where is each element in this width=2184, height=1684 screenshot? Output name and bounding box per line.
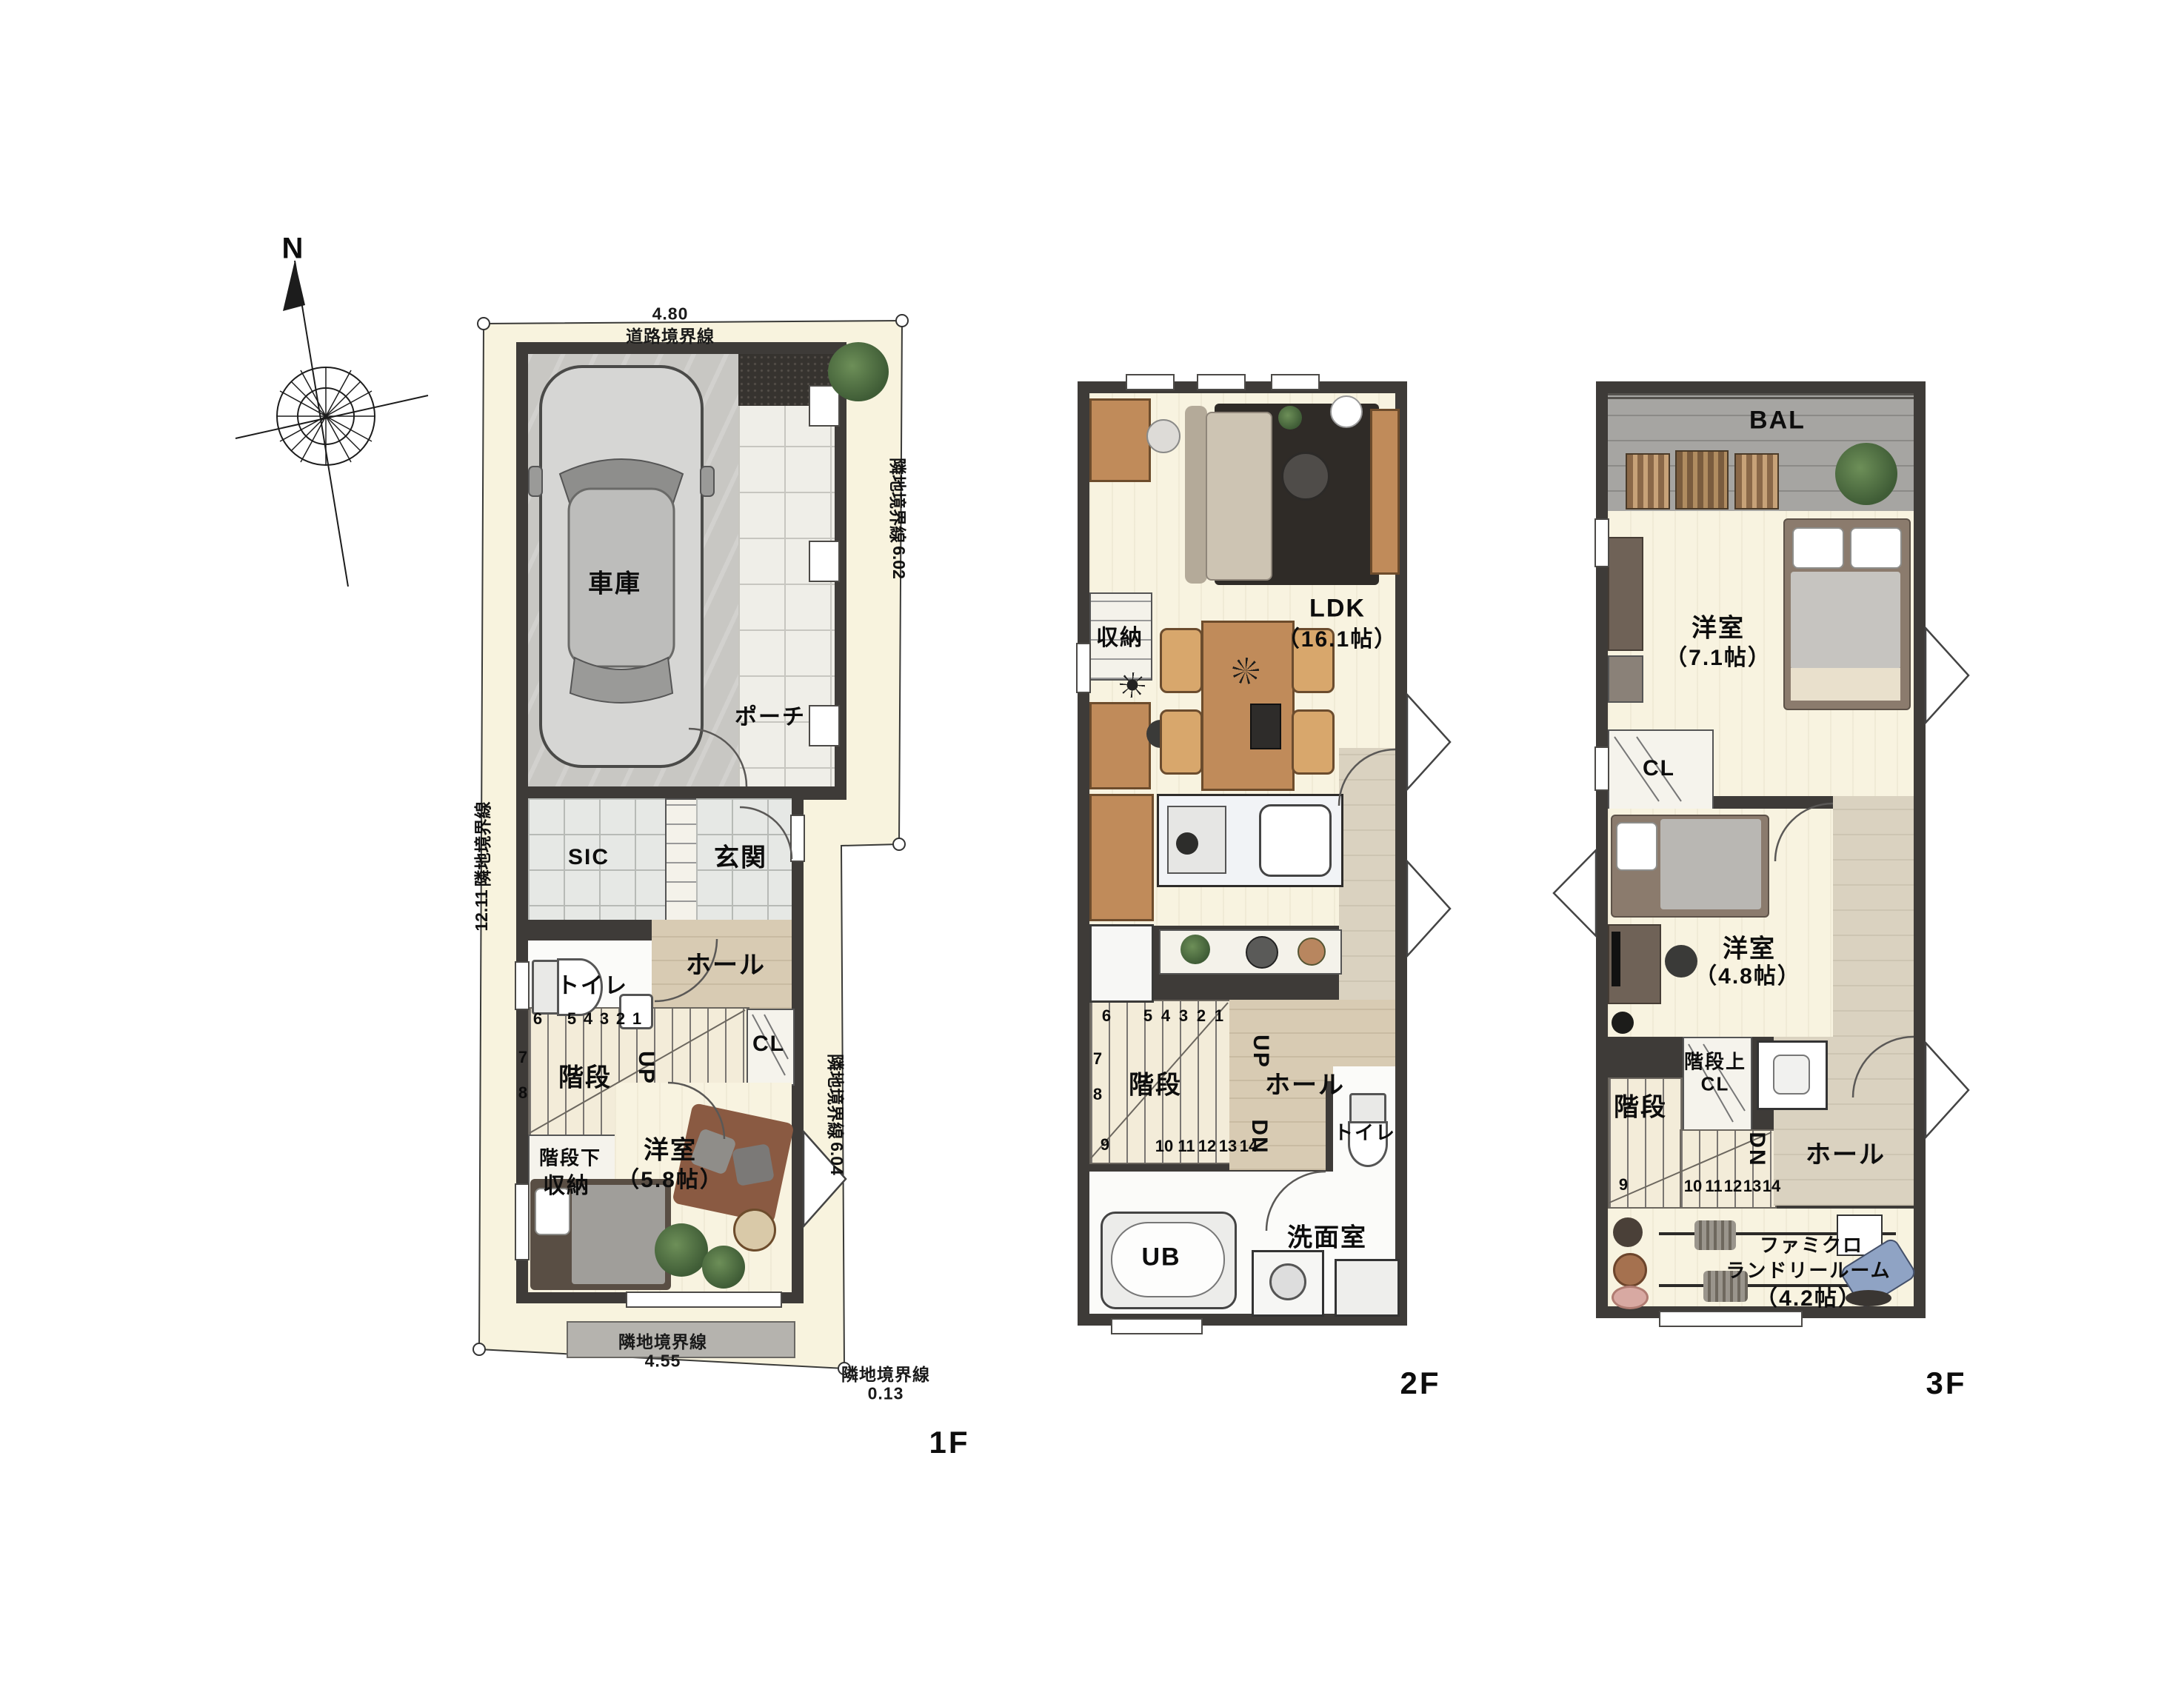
dim-bottom-line: 隣地境界線 bbox=[618, 1328, 707, 1353]
f2-step-4: 4 bbox=[1161, 1006, 1170, 1026]
f3-famiclo-label-3: （4.2帖） bbox=[1755, 1280, 1862, 1312]
f2-toilet-label: トイレ bbox=[1334, 1118, 1396, 1146]
f1-toilet-label: トイレ bbox=[557, 967, 628, 1000]
f1-understair-label-2: 収納 bbox=[543, 1167, 590, 1200]
f3-step-10: 10 bbox=[1684, 1177, 1702, 1196]
f1-bush bbox=[828, 342, 889, 401]
f1-step-4: 4 bbox=[584, 1009, 592, 1029]
f2-step-5: 5 bbox=[1143, 1006, 1152, 1026]
f2-floor-label: 2F bbox=[1400, 1366, 1440, 1401]
f3-stair-cl-label-1: 階段上 bbox=[1684, 1047, 1746, 1075]
f1-floor-label: 1F bbox=[929, 1425, 969, 1460]
dim-bottom: 4.55 bbox=[645, 1351, 681, 1371]
f1-porch-label: ポーチ bbox=[735, 698, 806, 731]
floorplan-canvas: N 4.80 道路境界線 12.11 隣地境界線 隣地境界線 6.02 隣地境界… bbox=[0, 0, 2184, 1684]
f3-floor-label: 3F bbox=[1926, 1366, 1966, 1401]
f1-step-6: 6 bbox=[533, 1009, 542, 1029]
f1-step-2: 2 bbox=[616, 1009, 625, 1029]
f2-step-7: 7 bbox=[1093, 1049, 1102, 1069]
dim-left: 12.11 隣地境界線 bbox=[469, 801, 494, 931]
f3-step-9: 9 bbox=[1619, 1175, 1628, 1194]
f3-dn-label: DN bbox=[1744, 1132, 1769, 1166]
f1-understair-label-1: 階段下 bbox=[539, 1143, 601, 1171]
f3-step-11: 11 bbox=[1705, 1177, 1722, 1196]
dim-left-value: 12.11 bbox=[472, 889, 492, 931]
dim-right-lower-value: 6.04 bbox=[827, 1142, 847, 1175]
f3-famiclo-label-1: ファミクロ bbox=[1760, 1231, 1863, 1258]
f1-garage-label: 車庫 bbox=[588, 564, 641, 600]
f3-bal-label: BAL bbox=[1749, 407, 1806, 435]
dim-road: 4.80 bbox=[652, 304, 689, 324]
f1-step-1: 1 bbox=[632, 1009, 641, 1029]
dim-bottom-right-line: 隣地境界線 bbox=[841, 1360, 930, 1386]
f2-step-2: 2 bbox=[1197, 1006, 1206, 1026]
f2-ldk-label: LDK bbox=[1309, 595, 1366, 624]
f1-entrance-label: 玄関 bbox=[714, 838, 767, 874]
compass-icon bbox=[236, 261, 428, 587]
f3-stairs-label: 階段 bbox=[1614, 1087, 1667, 1123]
f2-stairs-label: 階段 bbox=[1129, 1065, 1182, 1101]
compass-north-label: N bbox=[282, 233, 305, 266]
f3-hall-label: ホール bbox=[1806, 1135, 1886, 1171]
f3-stair-cl-label-2: CL bbox=[1701, 1073, 1730, 1096]
f1-step-7: 7 bbox=[518, 1048, 527, 1067]
f3-step-14: 14 bbox=[1763, 1177, 1780, 1196]
f2-bath-label: UB bbox=[1141, 1243, 1181, 1272]
f3-step-12: 12 bbox=[1724, 1177, 1742, 1196]
f2-step-13: 13 bbox=[1219, 1137, 1237, 1156]
dim-bottom-right: 0.13 bbox=[868, 1384, 904, 1404]
f2-step-6: 6 bbox=[1102, 1006, 1111, 1026]
f1-step-8: 8 bbox=[518, 1083, 527, 1103]
f2-ldk-size-label: （16.1帖） bbox=[1278, 621, 1397, 653]
f1-step-3: 3 bbox=[600, 1009, 609, 1029]
f1-sic-label: SIC bbox=[568, 845, 610, 870]
f2-step-10: 10 bbox=[1155, 1137, 1173, 1156]
annotation-drawing bbox=[0, 0, 2184, 1684]
f3-cl-label: CL bbox=[1643, 756, 1675, 781]
f2-hall-label: ホール bbox=[1265, 1065, 1345, 1101]
f2-step-8: 8 bbox=[1093, 1085, 1102, 1104]
dim-right-upper-line: 隣地境界線 bbox=[886, 458, 912, 543]
f2-dn-label: DN bbox=[1246, 1119, 1272, 1154]
f2-up-label: UP bbox=[1248, 1035, 1273, 1069]
dim-left-line: 隣地境界線 bbox=[469, 801, 494, 886]
f1-bedroom-size-label: （5.8帖） bbox=[617, 1161, 724, 1194]
f1-stairs-label: 階段 bbox=[558, 1057, 612, 1094]
dim-right-lower: 隣地境界線 6.04 bbox=[824, 1054, 849, 1175]
f2-step-12: 12 bbox=[1198, 1137, 1216, 1156]
f2-wash-label: 洗面室 bbox=[1287, 1217, 1367, 1254]
dim-right-lower-line: 隣地境界線 bbox=[824, 1054, 849, 1139]
f1-step-5: 5 bbox=[567, 1009, 576, 1029]
f3-bedroom2-size-label: （4.8帖） bbox=[1694, 958, 1801, 990]
dim-right-upper-value: 6.02 bbox=[889, 546, 909, 579]
f3-famiclo-label-2: ランドリールーム bbox=[1726, 1256, 1891, 1283]
f2-step-9: 9 bbox=[1101, 1135, 1109, 1155]
f1-up-label: UP bbox=[633, 1051, 658, 1085]
f2-step-3: 3 bbox=[1179, 1006, 1188, 1026]
f1-hall-label: ホール bbox=[686, 945, 766, 981]
dim-right-upper: 隣地境界線 6.02 bbox=[886, 458, 912, 579]
f3-bedroom1-size-label: （7.1帖） bbox=[1665, 639, 1771, 672]
f2-storage-label: 収納 bbox=[1096, 619, 1143, 652]
f2-step-1: 1 bbox=[1215, 1006, 1223, 1026]
f2-step-11: 11 bbox=[1178, 1137, 1195, 1156]
f1-cl-label: CL bbox=[752, 1032, 785, 1057]
f3-step-13: 13 bbox=[1743, 1177, 1761, 1196]
dim-road-line: 道路境界線 bbox=[626, 322, 715, 347]
